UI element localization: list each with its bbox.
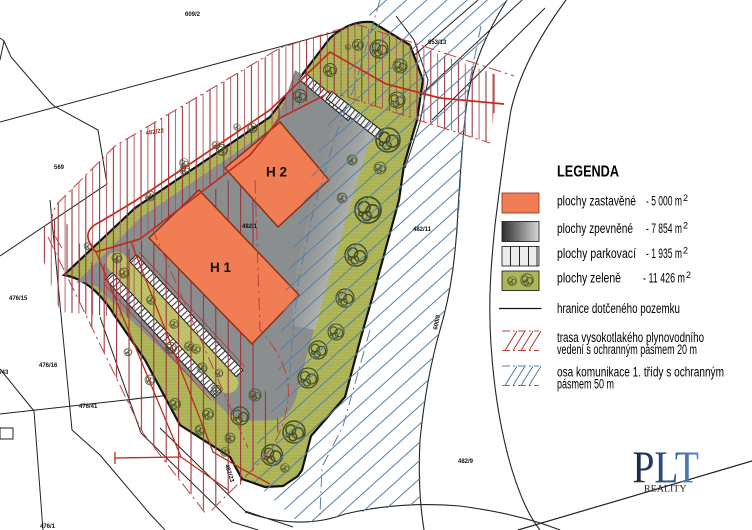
svg-text:LEGENDA: LEGENDA	[557, 164, 619, 181]
svg-text:H 1: H 1	[210, 260, 232, 275]
svg-text:609/2: 609/2	[185, 12, 201, 18]
svg-text:plochy parkovací: plochy parkovací	[557, 246, 636, 261]
svg-text:- 11 426 m: - 11 426 m	[643, 270, 685, 285]
svg-text:vedení s ochranným pásmem 20 m: vedení s ochranným pásmem 20 m	[557, 342, 697, 357]
svg-text:476/41: 476/41	[79, 404, 98, 410]
svg-text:2: 2	[686, 270, 691, 280]
svg-text:482/9: 482/9	[458, 459, 474, 465]
svg-text:plochy zeleně: plochy zeleně	[557, 270, 621, 285]
svg-text:653/13: 653/13	[428, 40, 447, 46]
svg-text:- 5 000 m: - 5 000 m	[646, 194, 682, 209]
svg-text:476/1: 476/1	[40, 524, 56, 530]
svg-text:plochy zpevněné: plochy zpevněné	[557, 221, 633, 236]
svg-text:plochy zastavěné: plochy zastavěné	[557, 194, 636, 209]
svg-text:/43: /43	[0, 370, 9, 376]
svg-text:H 2: H 2	[266, 165, 287, 180]
svg-text:2: 2	[683, 193, 688, 203]
svg-text:569: 569	[54, 165, 65, 171]
svg-text:482/11: 482/11	[413, 227, 432, 233]
svg-text:hranice dotčeného pozemku: hranice dotčeného pozemku	[557, 301, 680, 316]
svg-text:REALITY: REALITY	[644, 484, 687, 494]
svg-text:- 1 935 m: - 1 935 m	[646, 246, 682, 261]
svg-text:476/15: 476/15	[9, 296, 28, 302]
svg-text:- 7 854 m: - 7 854 m	[646, 221, 682, 236]
svg-text:476/16: 476/16	[39, 363, 58, 369]
svg-text:2: 2	[683, 221, 688, 231]
svg-text:482/1: 482/1	[242, 224, 258, 230]
svg-text:pásmem 50 m: pásmem 50 m	[557, 377, 614, 392]
svg-text:2: 2	[683, 245, 688, 255]
